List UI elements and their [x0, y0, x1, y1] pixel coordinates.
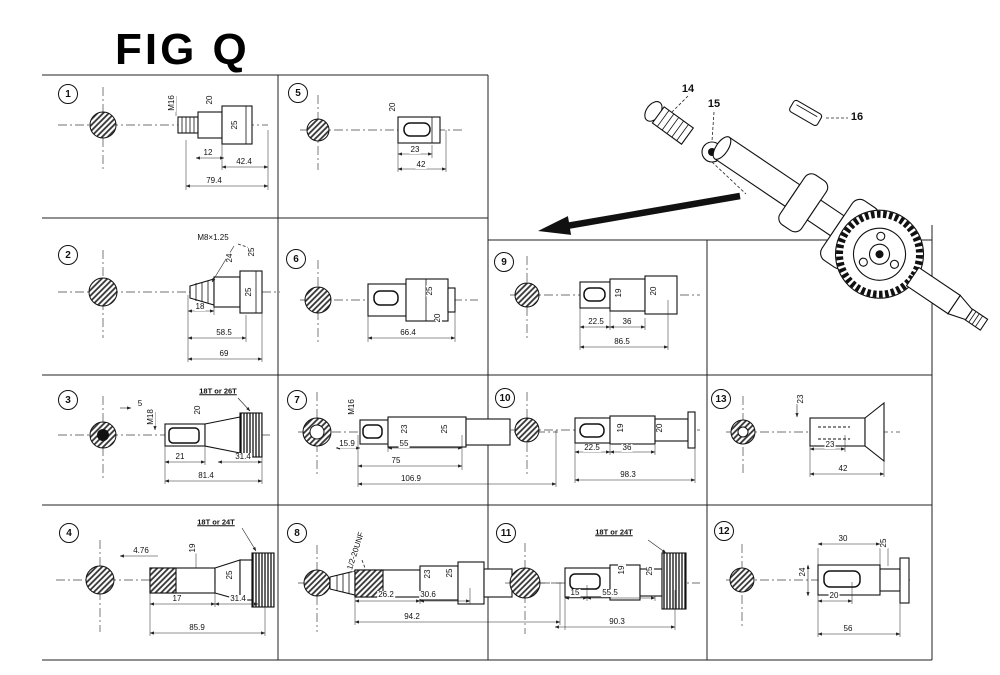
dim-label: 20 — [194, 405, 202, 416]
dim-label: 19 — [189, 543, 197, 554]
dim-label: 5 — [137, 400, 143, 408]
callout-4: 4 — [59, 523, 79, 543]
callout-13: 13 — [711, 389, 731, 409]
dim-label: M18 — [147, 408, 155, 426]
gear-teeth-label: 18T or 24T — [594, 528, 634, 536]
labels-overlay: 1M1620251242.479.452023422M8×1.252425251… — [0, 0, 1000, 675]
dim-label: M8×1.25 — [196, 234, 229, 242]
dim-label: 23 — [401, 424, 409, 435]
callout-5: 5 — [288, 83, 308, 103]
dim-label: 56 — [843, 625, 854, 633]
dim-label: 20 — [389, 102, 397, 113]
dim-label: 30.6 — [419, 591, 437, 599]
dim-label: 20 — [206, 95, 214, 106]
callout-3: 3 — [58, 390, 78, 410]
dim-label: 19 — [615, 288, 623, 299]
dim-label: 94.2 — [403, 613, 421, 621]
dim-label: 19 — [617, 423, 625, 434]
dim-label: 25 — [226, 570, 234, 581]
dim-label: 20 — [829, 592, 840, 600]
dim-label: M16 — [348, 398, 356, 416]
callout-7: 7 — [287, 390, 307, 410]
dim-label: 90.3 — [608, 618, 626, 626]
dim-label: 23 — [825, 441, 836, 449]
dim-label: 25 — [231, 120, 239, 131]
callout-11: 11 — [496, 523, 516, 543]
dim-label: 20 — [650, 286, 658, 297]
dim-label: M16 — [168, 94, 176, 112]
dim-label: 31.4 — [234, 453, 252, 461]
dim-label: 42.4 — [235, 158, 253, 166]
dim-label: 106.9 — [400, 475, 422, 483]
part-number-16: 16 — [851, 111, 863, 123]
dim-label: 25 — [446, 568, 454, 579]
dim-label: 69 — [219, 350, 230, 358]
dim-label: 79.4 — [205, 177, 223, 185]
callout-6: 6 — [286, 249, 306, 269]
dim-label: 30 — [838, 535, 849, 543]
dim-label: 58.5 — [215, 329, 233, 337]
dim-label: 81.4 — [197, 472, 215, 480]
dim-label: 1/2-20UNF — [346, 530, 366, 572]
dim-label: 25 — [880, 538, 888, 549]
dim-label: 25 — [245, 287, 253, 298]
callout-12: 12 — [714, 521, 734, 541]
dim-label: 24 — [799, 567, 807, 578]
dim-label: 26.2 — [377, 591, 395, 599]
callout-9: 9 — [494, 252, 514, 272]
dim-label: 86.5 — [613, 338, 631, 346]
gear-teeth-label: 18T or 26T — [198, 387, 238, 395]
dim-label: 31.4 — [229, 595, 247, 603]
dim-label: 42 — [416, 161, 427, 169]
dim-label: 23 — [797, 394, 805, 405]
dim-label: 55.5 — [601, 589, 619, 597]
dim-label: 36 — [622, 444, 633, 452]
dim-label: 15 — [570, 589, 581, 597]
dim-label: 20 — [656, 423, 664, 434]
dim-label: 23 — [424, 569, 432, 580]
dim-label: 19 — [618, 565, 626, 576]
dim-label: 20 — [434, 313, 442, 324]
dim-label: 17 — [172, 595, 183, 603]
dim-label: 22.5 — [583, 444, 601, 452]
dim-label: 24 — [226, 253, 234, 264]
gear-teeth-label: 18T or 24T — [196, 518, 236, 526]
part-number-14: 14 — [682, 83, 694, 95]
part-number-15: 15 — [708, 98, 720, 110]
parts-diagram-page: FIG Q 1M1620251242.479.452023422M8×1.252… — [0, 0, 1000, 675]
dim-label: 22.5 — [587, 318, 605, 326]
dim-label: 55 — [399, 440, 410, 448]
dim-label: 75 — [391, 457, 402, 465]
callout-10: 10 — [495, 388, 515, 408]
dim-label: 25 — [248, 247, 256, 258]
dim-label: 12 — [203, 149, 214, 157]
dim-label: 42 — [838, 465, 849, 473]
dim-label: 25 — [441, 424, 449, 435]
dim-label: 36 — [622, 318, 633, 326]
dim-label: 21 — [175, 453, 186, 461]
callout-8: 8 — [287, 523, 307, 543]
dim-label: 98.3 — [619, 471, 637, 479]
dim-label: 85.9 — [188, 624, 206, 632]
dim-label: 23 — [410, 146, 421, 154]
dim-label: 25 — [426, 286, 434, 297]
callout-2: 2 — [58, 245, 78, 265]
dim-label: 15.9 — [338, 440, 356, 448]
dim-label: 18 — [195, 303, 206, 311]
dim-label: 66.4 — [399, 329, 417, 337]
callout-1: 1 — [58, 84, 78, 104]
dim-label: 25 — [646, 566, 654, 577]
dim-label: 4.76 — [132, 547, 150, 555]
